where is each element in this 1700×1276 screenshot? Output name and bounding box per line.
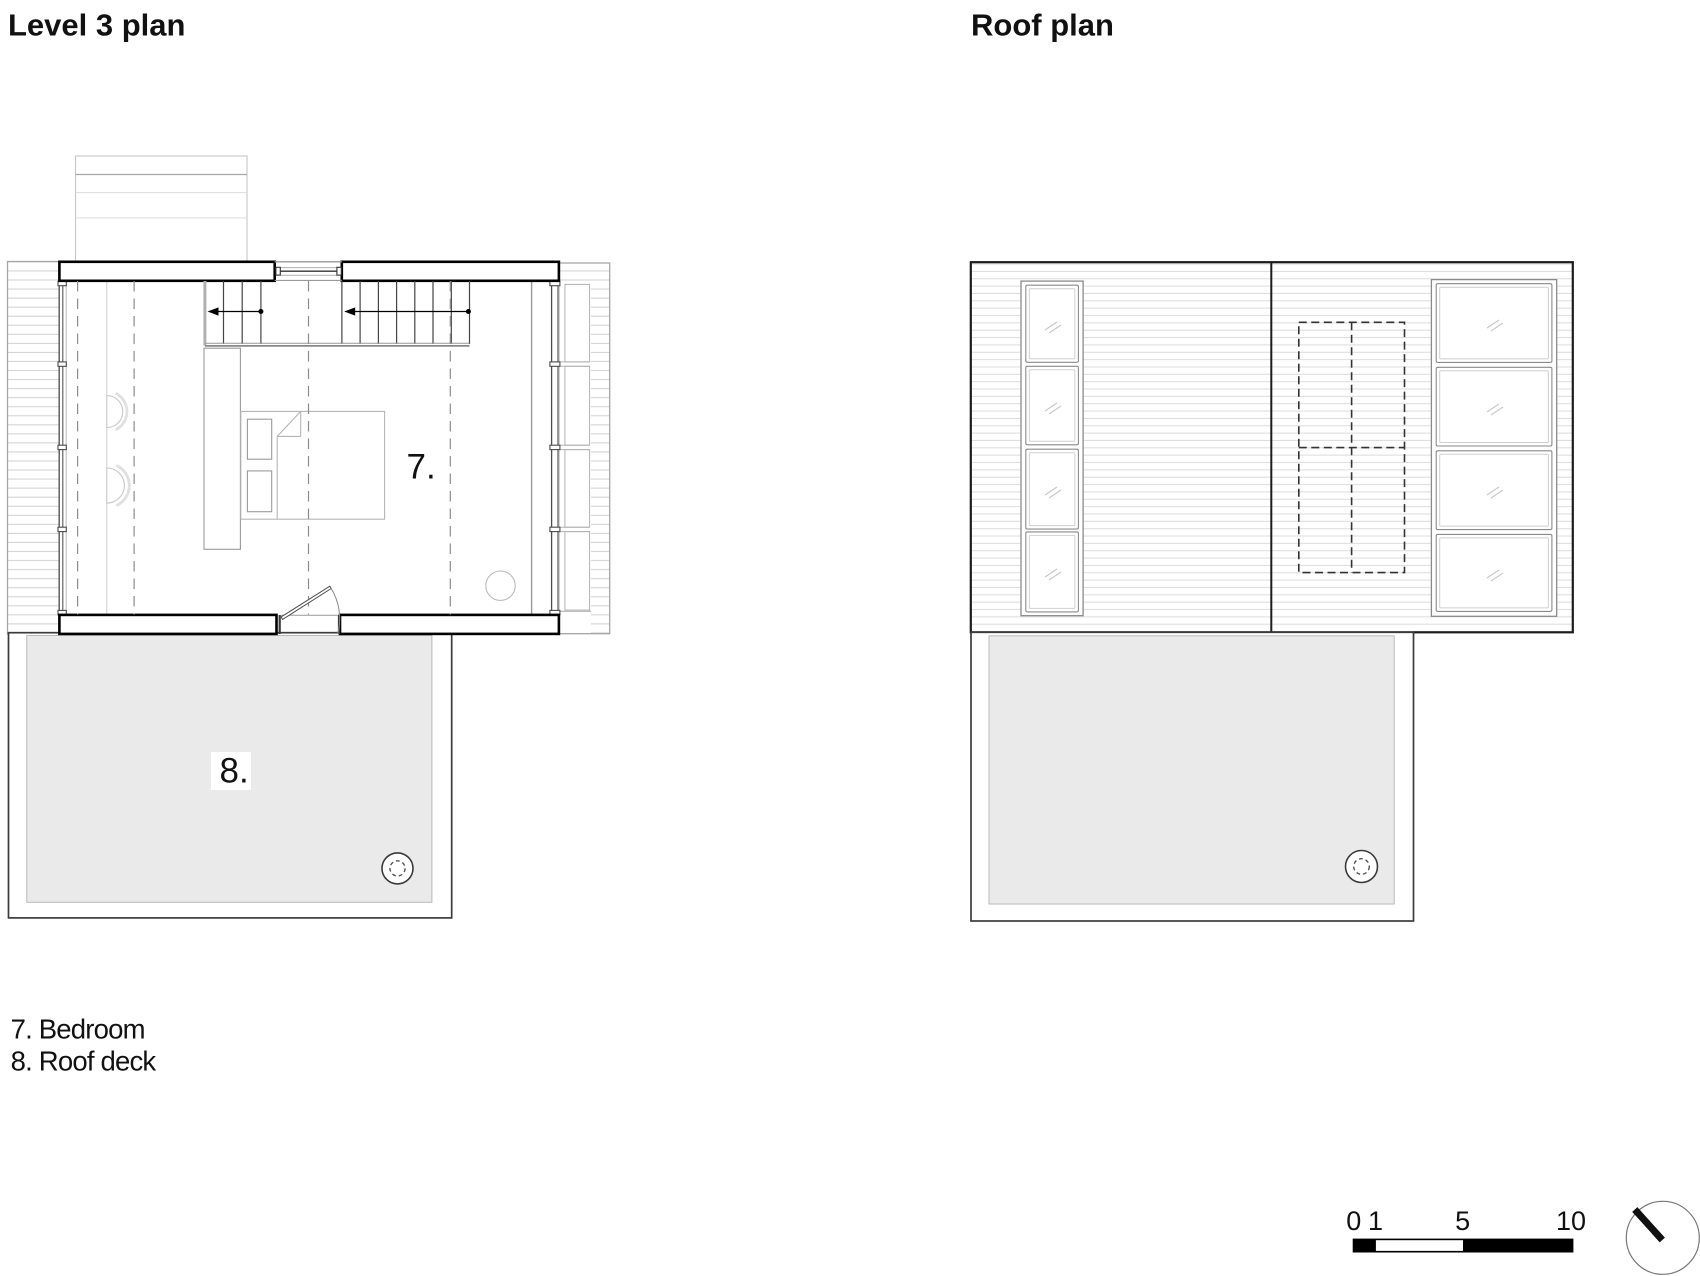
svg-text:8. Roof deck: 8. Roof deck bbox=[11, 1045, 157, 1076]
svg-text:7.: 7. bbox=[407, 448, 436, 487]
svg-text:7. Bedroom: 7. Bedroom bbox=[11, 1013, 145, 1044]
svg-text:10: 10 bbox=[1556, 1206, 1586, 1236]
svg-text:0: 0 bbox=[1346, 1206, 1361, 1236]
svg-text:Level 3 plan: Level 3 plan bbox=[8, 8, 185, 43]
svg-text:Roof plan: Roof plan bbox=[971, 7, 1114, 42]
svg-text:5: 5 bbox=[1455, 1206, 1470, 1236]
svg-text:1: 1 bbox=[1368, 1206, 1383, 1236]
svg-text:8.: 8. bbox=[220, 752, 249, 791]
